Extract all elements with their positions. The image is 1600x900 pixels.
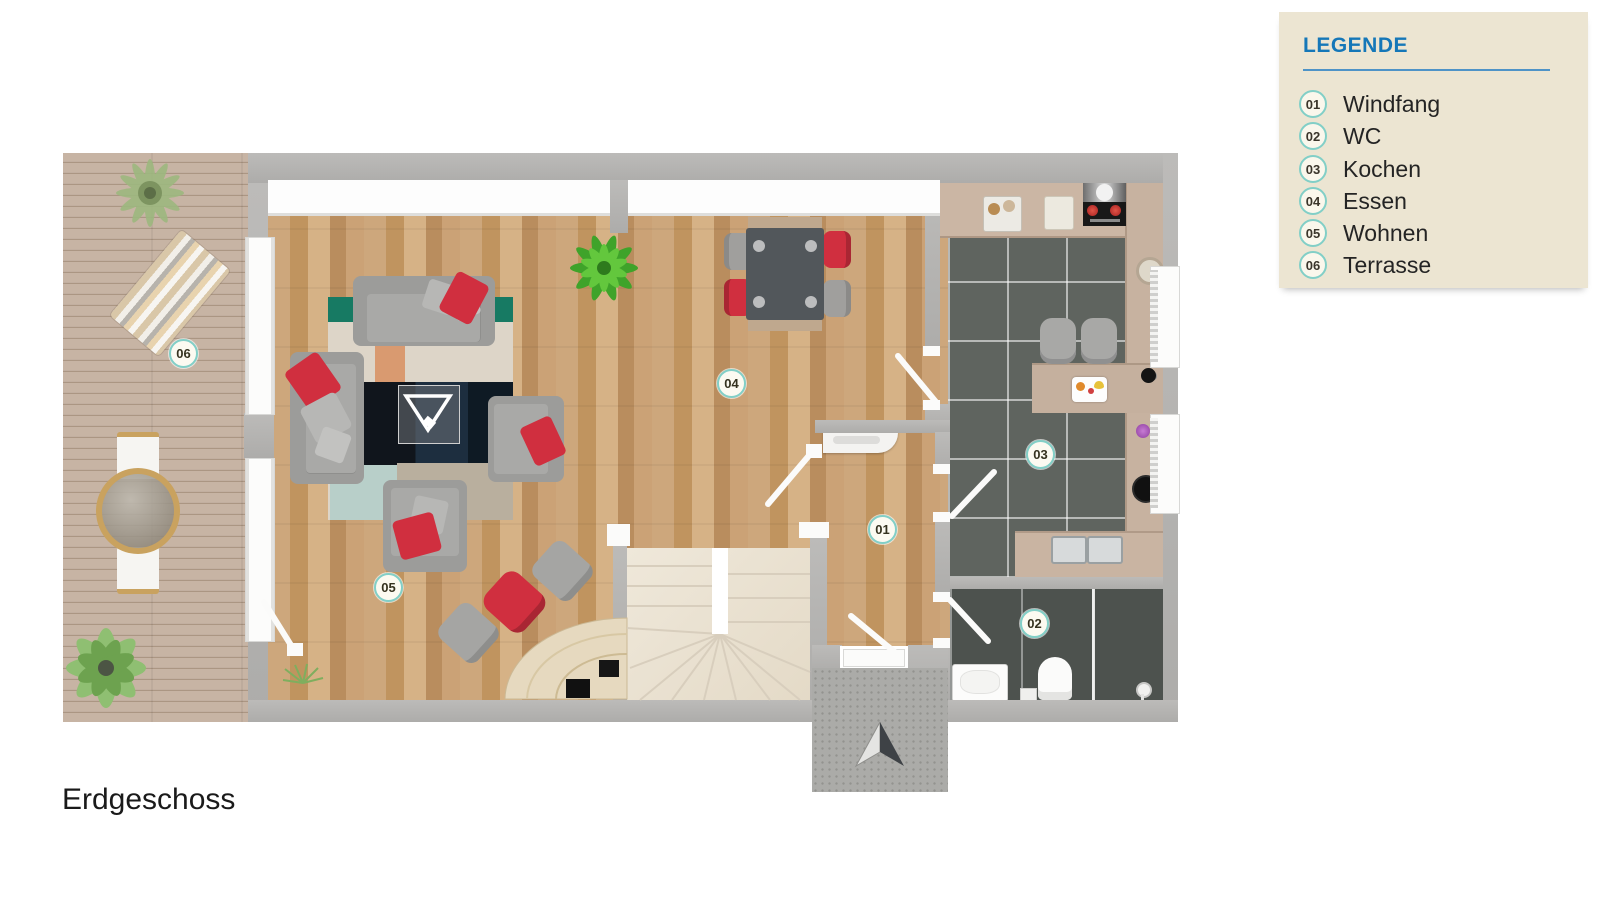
legend-badge-01: 01: [1299, 90, 1327, 118]
room-badge-02-num: 02: [1027, 616, 1041, 631]
legend-panel: LEGENDE 01 Windfang 02 WC 03 Kochen 04 E…: [1279, 12, 1588, 288]
legend-badge-04: 04: [1299, 187, 1327, 215]
floorplan-canvas: 01 02 03 04 05 06 Erdgeschoss LEGENDE 01…: [0, 0, 1600, 900]
room-badge-01: 01: [868, 515, 897, 544]
legend-rule: [1303, 69, 1550, 71]
coffee-table-logo: [406, 396, 450, 430]
door-dining-kitchen: [898, 356, 936, 402]
door-hall-entry: [768, 452, 812, 504]
legend-item-terrasse: 06 Terrasse: [1299, 251, 1431, 279]
room-badge-05-num: 05: [381, 580, 395, 595]
legend-badge-02: 02: [1299, 122, 1327, 150]
room-badge-03: 03: [1026, 440, 1055, 469]
legend-badge-05: 05: [1299, 219, 1327, 247]
legend-item-essen: 04 Essen: [1299, 187, 1407, 215]
legend-title: LEGENDE: [1303, 34, 1408, 58]
plant-dining: [570, 234, 638, 303]
legend-label-02: WC: [1343, 123, 1381, 150]
room-badge-03-num: 03: [1033, 447, 1047, 462]
legend-item-wohnen: 05 Wohnen: [1299, 219, 1428, 247]
legend-label-01: Windfang: [1343, 91, 1440, 118]
page-title: Erdgeschoss: [62, 783, 235, 817]
legend-item-wc: 02 WC: [1299, 122, 1381, 150]
plant-terrace-bottom: [66, 628, 146, 708]
legend-badge-06: 06: [1299, 251, 1327, 279]
room-badge-06-num: 06: [176, 346, 190, 361]
door-front-entry: [851, 616, 897, 654]
legend-item-kochen: 03 Kochen: [1299, 155, 1421, 183]
legend-badge-03: 03: [1299, 155, 1327, 183]
grass-tuft: [283, 664, 323, 683]
door-terrace: [264, 602, 294, 650]
firewood-nook: [505, 618, 627, 699]
door-hall-wc: [950, 600, 988, 641]
plant-terrace-top: [116, 159, 184, 227]
legend-label-05: Wohnen: [1343, 220, 1428, 247]
legend-item-windfang: 01 Windfang: [1299, 90, 1440, 118]
room-badge-06: 06: [169, 339, 198, 368]
legend-label-04: Essen: [1343, 188, 1407, 215]
room-badge-02: 02: [1020, 609, 1049, 638]
room-badge-04-num: 04: [724, 376, 738, 391]
room-badge-01-num: 01: [875, 522, 889, 537]
room-badge-05: 05: [374, 573, 403, 602]
stair-divider: [712, 548, 728, 634]
room-badge-04: 04: [717, 369, 746, 398]
north-arrow: [856, 722, 904, 766]
legend-label-03: Kochen: [1343, 156, 1421, 183]
door-hall-kitchen: [952, 472, 994, 516]
legend-label-06: Terrasse: [1343, 252, 1431, 279]
door-leaves: [264, 356, 994, 654]
